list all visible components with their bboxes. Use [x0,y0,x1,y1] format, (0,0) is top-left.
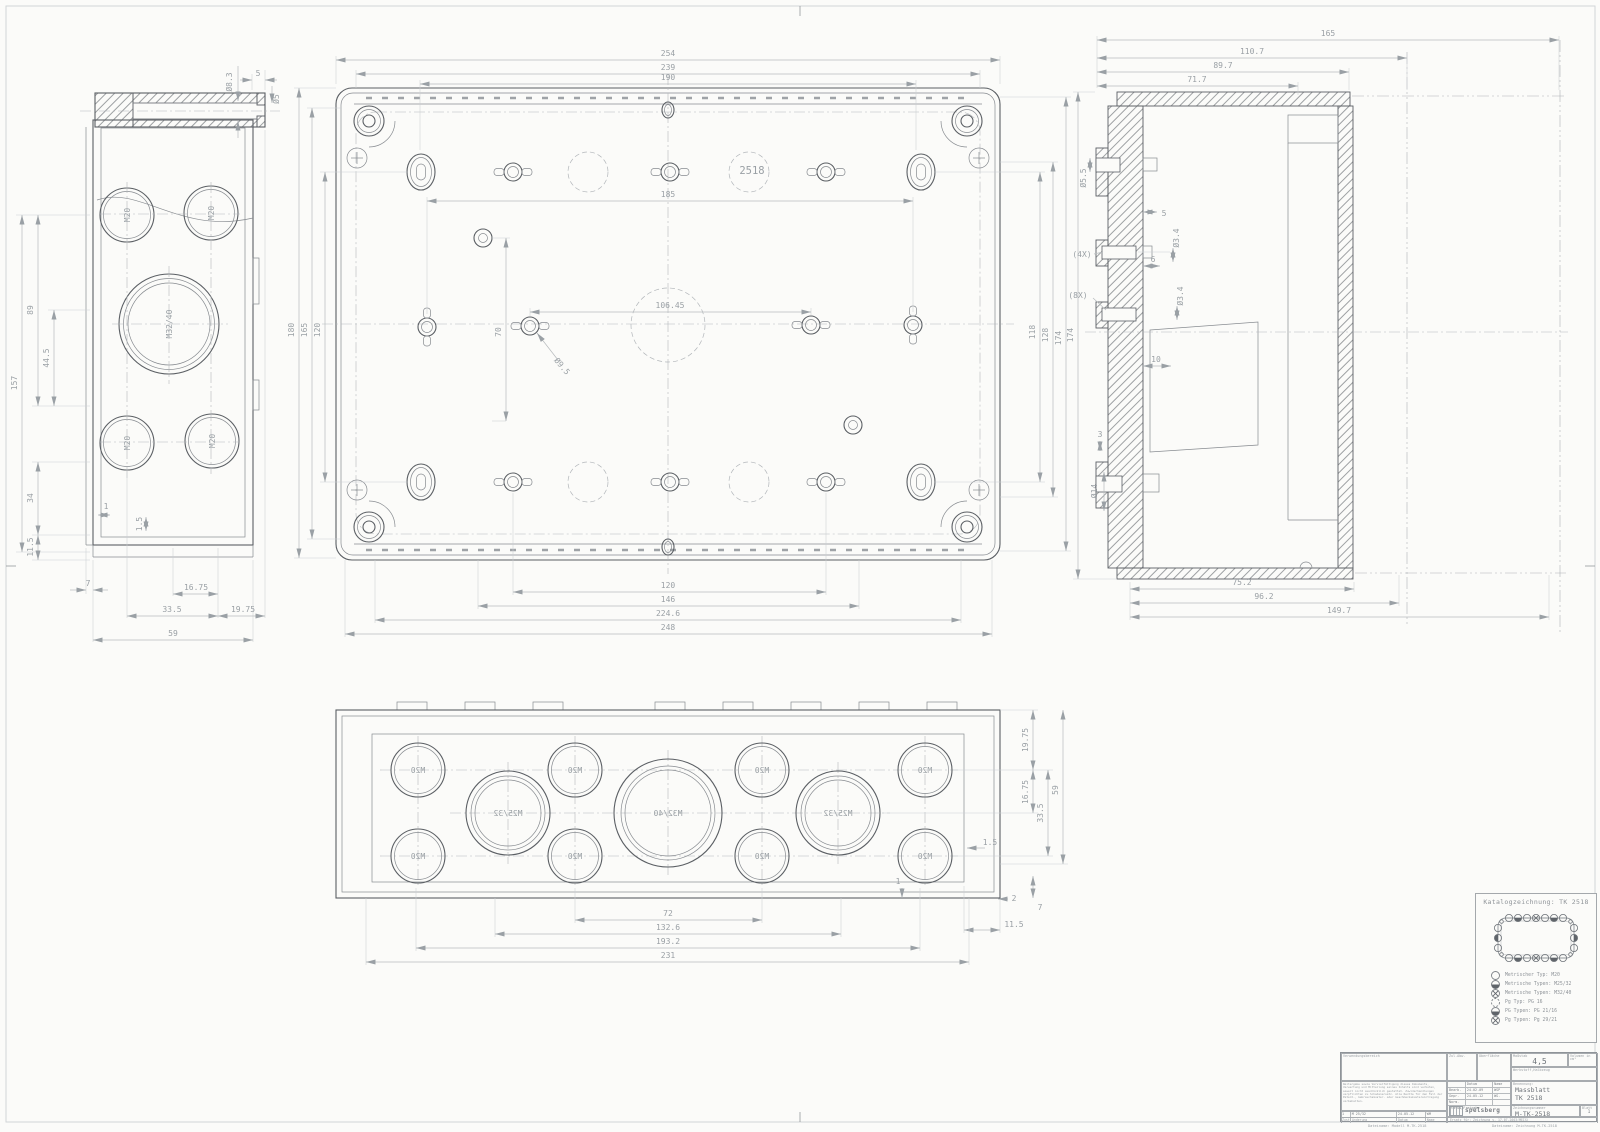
dim-16-75: 16.75 [1021,780,1030,804]
dim-d8-3: Ø8.3 [224,72,234,91]
dim-59: 59 [1051,785,1060,795]
title-block: Verwendungsbereich Zul.Abw. Oberfläche M… [1340,1052,1597,1122]
dim-224-6: 224.6 [656,609,680,618]
legal-text: Weitergabe sowie Vervielfältigung dieses… [1342,1082,1446,1104]
legend-item-label: Metrische Typen: M32/40 [1505,991,1571,996]
cell-verwendungsbereich: Verwendungsbereich [1341,1053,1447,1081]
label-m20: M20 [411,766,426,775]
dim-1-5: 1.5 [135,517,144,532]
dim-n1: 1 [896,877,901,886]
legend-box: Katalogzeichnung: TK 2518 [1475,893,1597,1043]
label-m20: M20 [568,766,583,775]
dim-120: 120 [313,323,322,338]
legend-item-label: Pg Typ: PG 16 [1505,1000,1543,1005]
ersatz-text: Ersatz für: Zeichnung v. 17.07.2003(MEIS… [1448,1118,1597,1123]
cell-zeichnungsnummer: Zeichnungsnummer M-TK-2518 [1511,1105,1580,1117]
cell-massstab: Maßstab 4,5 [1511,1053,1568,1067]
dim-185: 185 [661,190,676,199]
company-logo: spelsberg [1465,1107,1500,1114]
dim-33-5: 33.5 [1036,803,1045,822]
dim-d9-5: Ø9.5 [552,355,572,376]
gepr-name: WG. [1493,1094,1510,1099]
label-m20: M20 [123,208,132,223]
aenderung-label: Änderung [1351,1118,1397,1123]
dim-34: 34 [26,493,35,503]
cell-benennung: Benennung: Massblatt TK 2518 [1511,1081,1598,1105]
cell-werkstoff: Werkstoff,Halbzeug [1511,1067,1598,1081]
dim-165: 165 [300,323,309,338]
dim-d3-4: Ø3.4 [1171,228,1181,247]
sheet-frame [6,6,1595,1122]
dim-70: 70 [494,327,503,337]
drawing-canvas: M20 M20 M20 M20 M32/40 Ø8.3 5 Ø5 157 89 … [0,0,1600,1132]
dim-96-2: 96.2 [1254,592,1273,601]
crossed-circle-symbol [1490,1015,1501,1026]
dim-n5: 5 [1162,209,1167,218]
label-m20: M20 [207,206,216,221]
dim-n3: 3 [1098,430,1103,439]
name-label: Name [1493,1082,1510,1087]
oberflaeche-label: Oberfläche [1478,1054,1510,1058]
dim-89-7: 89.7 [1213,61,1232,70]
zul-abw-label: Zul.Abw. [1448,1054,1476,1058]
legend-item-label: Metrischer Typ: M20 [1505,973,1560,978]
knockouts-front: M20 M20 M20 M20 M20 M20 M20 M20 M25/32 M… [391,743,952,883]
dim-b120: 120 [661,581,676,590]
dim-n10: 10 [1151,355,1161,364]
dim-d5: Ø5 [271,94,281,104]
dim-n6: 6 [1151,255,1156,264]
dim-190: 190 [661,73,676,82]
dim-19-75: 19.75 [231,605,255,614]
label-m20: M20 [755,766,770,775]
cell-blatt: Blatt 1 1 Bl. [1580,1105,1598,1117]
cell-ersatz: Ersatz für: Zeichnung v. 17.07.2003(MEIS… [1447,1117,1598,1123]
massstab-value: 4,5 [1512,1058,1567,1067]
name2-label: Name [1426,1118,1446,1123]
dim-146: 146 [661,595,676,604]
legend-item: Pg Typen: Pg 29/21 [1480,1016,1592,1025]
norm-label: Norm. [1448,1100,1466,1105]
legend-item-label: Metrische Typen: M25/32 [1505,982,1571,987]
benennung-line2: TK 2518 [1512,1094,1597,1102]
dim-75-2: 75.2 [1232,578,1251,587]
cell-oberflaeche: Oberfläche [1477,1053,1511,1081]
label-m20: M20 [208,434,217,449]
dim-72: 72 [663,909,673,918]
plan-view: 2518 254 239 190 185 106.45 70 Ø9.5 180 … [287,49,1071,637]
dim-33-5: 33.5 [162,605,181,614]
dim-239: 239 [661,63,676,72]
label-m32-40: M32/40 [165,309,174,338]
dim-106-45: 106.45 [656,301,685,310]
legend-schematic [1480,907,1592,969]
dim-248: 248 [661,623,676,632]
dim-v174: 174 [1066,328,1075,343]
cell-volumen: Volumen in cm³ [1568,1053,1598,1067]
front-view: M20 M20 M20 M20 M20 M20 M20 M20 M25/32 M… [336,702,1068,965]
label-m20: M20 [918,766,933,775]
callout-8x: (8X) [1068,291,1087,300]
dim-d14: Ø14 [1089,484,1099,499]
label-m20: M20 [918,852,933,861]
dim-193-2: 193.2 [656,937,680,946]
dim-132-6: 132.6 [656,923,680,932]
legend-items: Metrischer Typ: M20 Metrische Typen: M25… [1480,971,1592,1025]
cell-zul-abw: Zul.Abw. [1447,1053,1477,1081]
approval-stamp-icon [1449,1106,1463,1116]
bearb-datum: 24.02.09 [1466,1088,1493,1093]
dim-180: 180 [287,323,296,338]
label-m20: M20 [123,436,132,451]
dim-44-5: 44.5 [42,348,51,367]
dim-59: 59 [168,629,178,638]
dim-110-7: 110.7 [1240,47,1264,56]
legend-item-label: PG Typen: PG 21/16 [1505,1009,1557,1014]
label-m20: M20 [568,852,583,861]
dim-174: 174 [1054,331,1063,346]
zust-label: Zust. [1342,1118,1351,1123]
verwendungsbereich-label: Verwendungsbereich [1342,1054,1446,1058]
bearb-label: Bearb. [1448,1088,1466,1093]
footer-file-drawing: Dateiname: Zeichnung M-TK-2518 [1492,1124,1557,1128]
callout-4x: (4X) [1072,250,1091,259]
dim-19-75: 19.75 [1021,728,1030,752]
dim-5: 5 [256,69,261,78]
dim-11-5: 11.5 [1004,920,1023,929]
dim-1-5: 1.5 [983,838,998,847]
label-m20: M20 [755,852,770,861]
werkstoff-label: Werkstoff,Halbzeug [1512,1068,1597,1072]
dim-11-5: 11.5 [26,537,35,556]
zeichnungsnummer-value: M-TK-2518 [1512,1110,1579,1117]
drawing-sheet: M20 M20 M20 M20 M32/40 Ø8.3 5 Ø5 157 89 … [0,0,1600,1132]
section-view: 165 110.7 89.7 71.7 174 Ø5.5 5 Ø3.4 (4X)… [1066,29,1568,632]
benennung-line1: Massblatt [1512,1086,1597,1094]
dim-157: 157 [10,376,19,391]
dim-16-75: 16.75 [184,583,208,592]
bearb-name: WSP [1493,1088,1510,1093]
legend-item-label: Pg Typen: Pg 29/21 [1505,1018,1557,1023]
dim-1: 1 [104,502,109,511]
dim-118: 118 [1028,325,1037,340]
label-m20: M20 [411,852,426,861]
part-number-emboss: 2518 [739,165,764,177]
dim-n2: 2 [1012,894,1017,903]
dim-149-7: 149.7 [1327,606,1351,615]
dim-231: 231 [661,951,676,960]
dim-89: 89 [26,305,35,315]
gepr-datum: 24.05.12 [1466,1094,1493,1099]
cell-legal: Weitergabe sowie Vervielfältigung dieses… [1341,1081,1447,1111]
gepr-label: Gepr. [1448,1094,1466,1099]
footer-file-model: Dateiname: Modell M-TK-2518 [1368,1124,1426,1128]
legend-title: Katalogzeichnung: TK 2518 [1480,898,1592,906]
datum-label: Datum [1466,1082,1493,1087]
label-m32-40: M32/40 [653,809,682,818]
cell-revision-labels: Zust. Änderung Datum Name [1341,1117,1447,1123]
dim-n7: 7 [1038,903,1043,912]
dim-165: 165 [1321,29,1336,38]
dim-254: 254 [661,49,676,58]
volumen-label: Volumen in cm³ [1569,1054,1597,1062]
label-m25-32: M25/32 [493,809,522,818]
dim-71-7: 71.7 [1187,75,1206,84]
mounting-holes [418,163,922,491]
dim-d3-4b: Ø3.4 [1175,286,1185,305]
side-view-left: M20 M20 M20 M20 M32/40 Ø8.3 5 Ø5 157 89 … [10,66,281,642]
dim-d5-5: Ø5.5 [1078,168,1088,187]
datum2-label: Datum [1397,1118,1426,1123]
label-m25-32: M25/32 [823,809,852,818]
oval-bosses [407,154,935,500]
dim-128: 128 [1041,328,1050,343]
cell-logo: spelsberg [1447,1105,1511,1117]
dim-7: 7 [86,579,91,588]
